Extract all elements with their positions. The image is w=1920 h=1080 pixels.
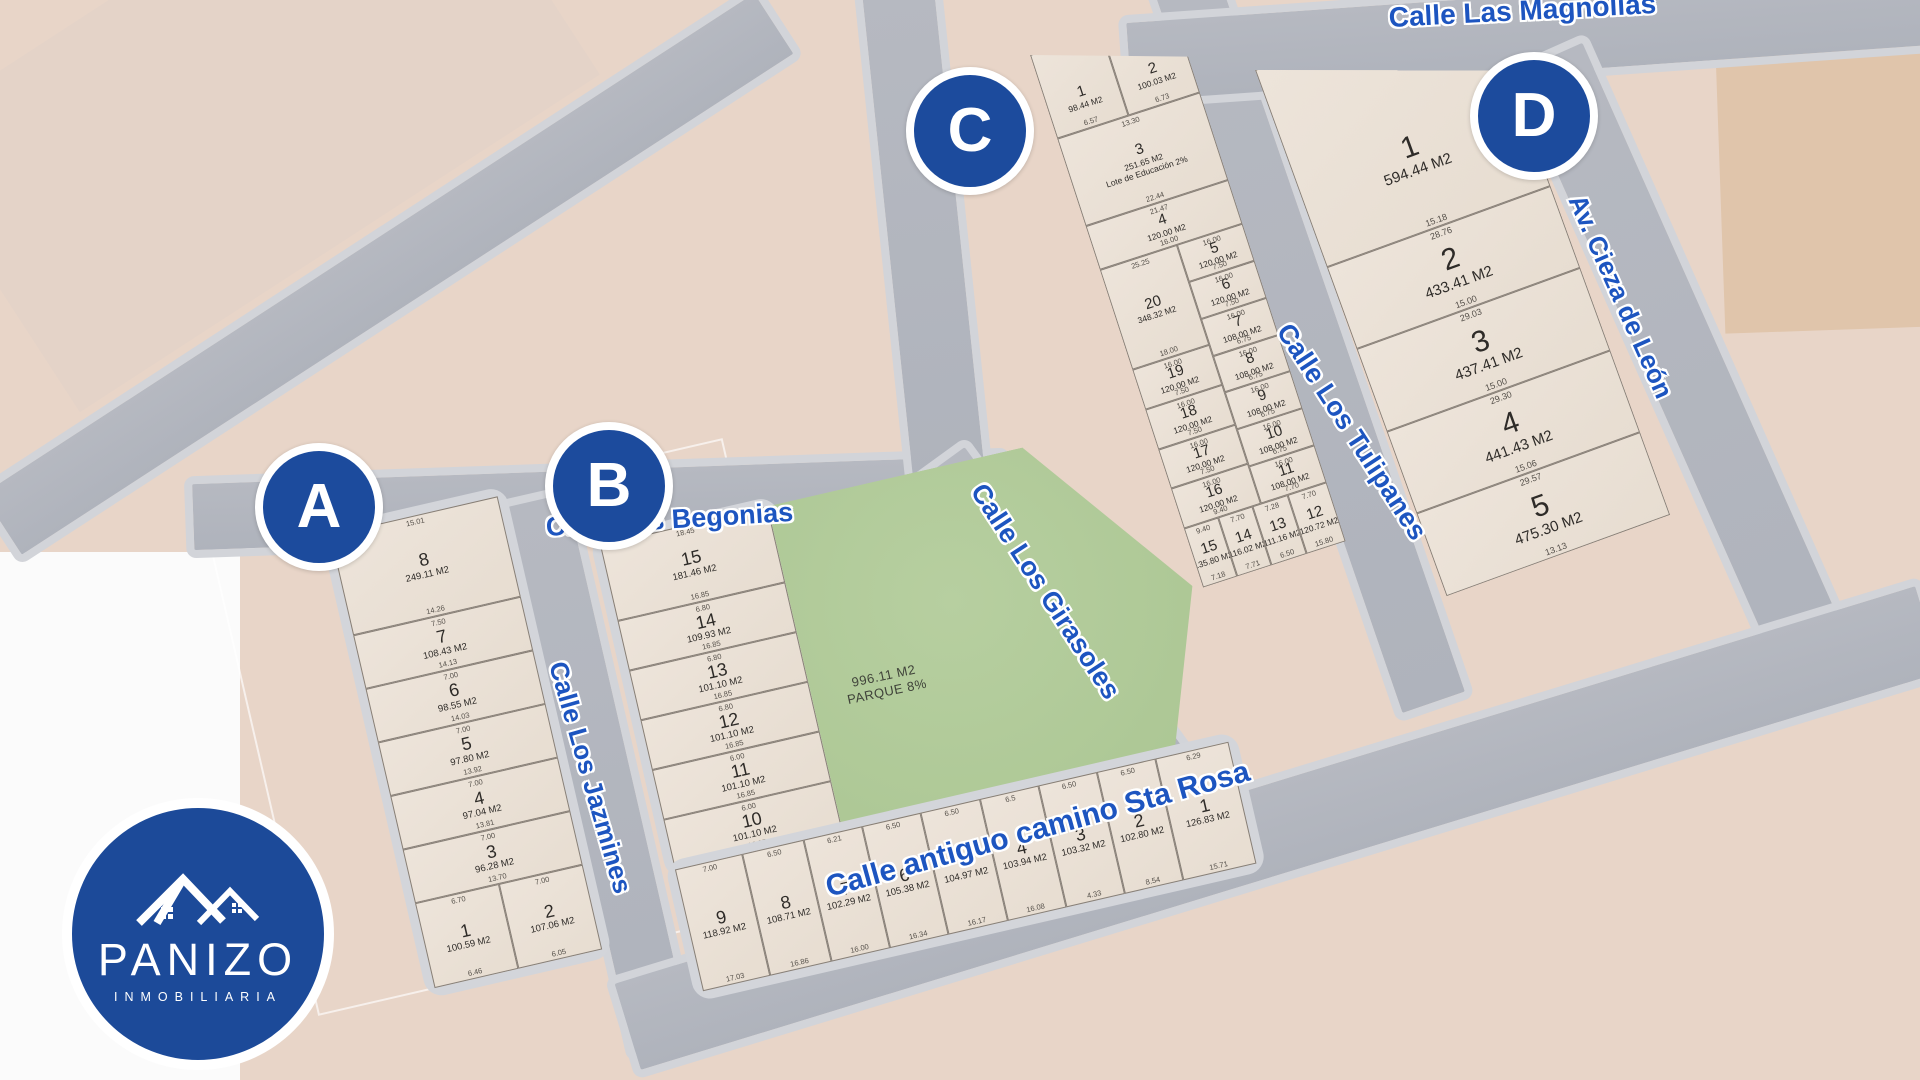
lot-number: 8 [779,892,793,913]
lot-number: 4 [472,788,486,809]
logo-brand-subtitle: INMOBILIARIA [114,990,282,1004]
lot-dimension: 7.18 [1201,566,1236,585]
lot-dimension: 7.71 [1235,555,1270,574]
lot-number: 8 [417,550,431,571]
roofs-icon [133,865,263,932]
block-marker-a-letter: A [297,476,342,538]
panizo-logo: PANIZO INMOBILIARIA [62,798,334,1070]
lot-number: 3 [484,841,498,862]
lot-number: 5 [460,734,474,755]
lot-number: 2 [542,901,556,922]
bg-patch-top-right [1715,21,1920,333]
block-marker-c-letter: C [948,100,993,162]
block-marker-b: B [545,422,673,550]
block-marker-a: A [255,443,383,571]
lot-dimension: 6.50 [1269,544,1304,563]
block-marker-d: D [1470,52,1598,180]
lot-dimension: 6.90 [1032,34,1104,65]
lot-number: 1 [458,920,472,941]
block-marker-b-letter: B [587,455,632,517]
lot-number: 7 [435,627,449,648]
lot-map: 15.018249.11 M214.267.507108.43 M214.137… [0,0,1920,1080]
block-marker-d-letter: D [1512,85,1557,147]
logo-brand-name: PANIZO [98,934,298,986]
lot-number: 6 [447,681,461,702]
lot-number: 9 [714,907,728,928]
block-marker-c: C [906,67,1034,195]
